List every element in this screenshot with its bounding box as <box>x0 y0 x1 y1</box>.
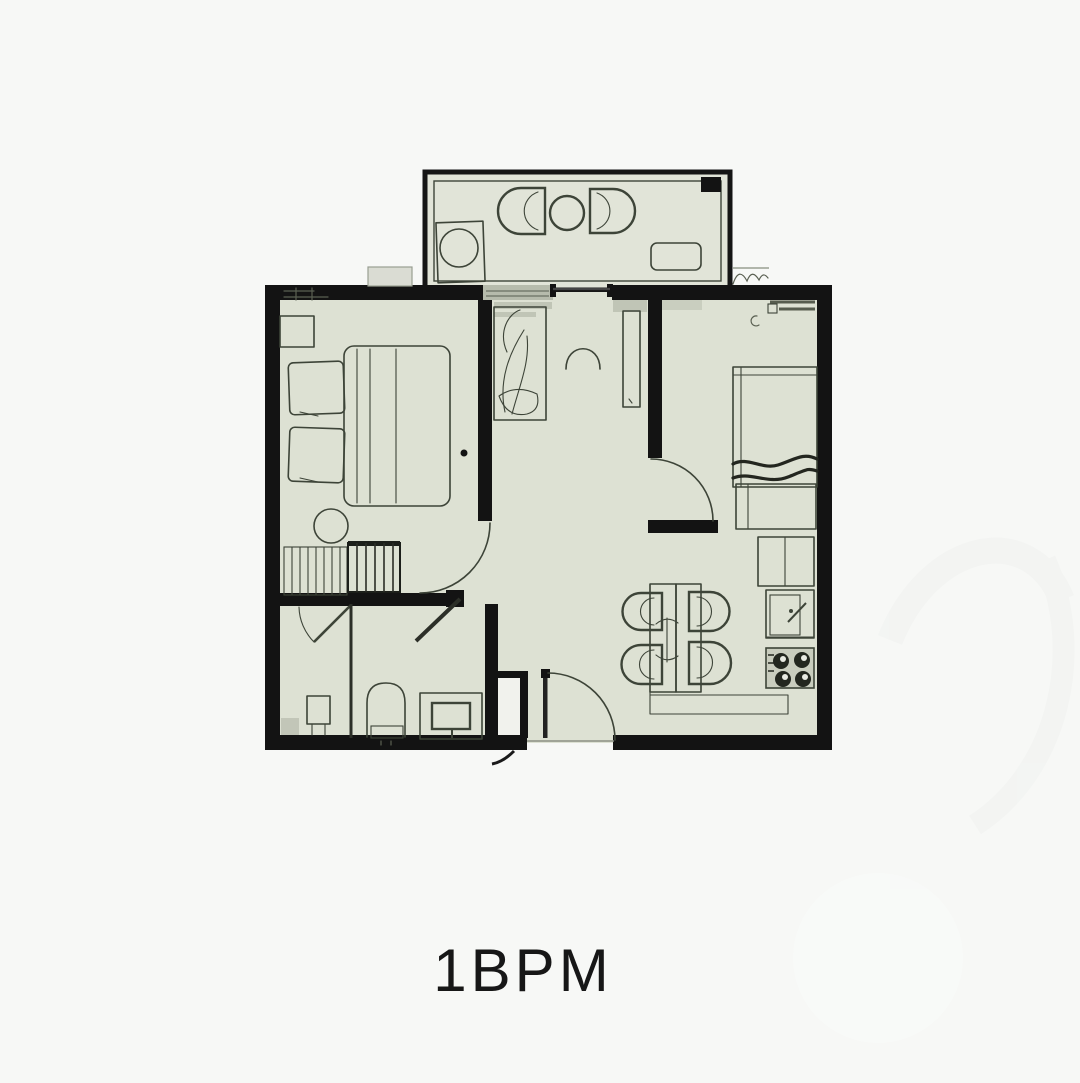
balcony <box>425 172 730 290</box>
window-marker-left <box>368 267 412 286</box>
balcony-wall <box>425 172 730 290</box>
wall-bottom-right <box>613 735 832 750</box>
plan-title: 1BPM <box>0 936 1046 1005</box>
entry-closet-lintel <box>492 671 528 678</box>
wall-left <box>265 285 280 750</box>
wall-top-left <box>265 285 483 300</box>
wall-top-right <box>612 285 832 300</box>
floorplan-page: 1BPM <box>0 0 1080 1083</box>
stove <box>766 648 814 688</box>
window-scribble-right <box>733 268 769 284</box>
balcony-corner-post <box>701 177 721 192</box>
entry-door-leaf <box>543 672 548 738</box>
wc-floor-mat <box>281 718 299 735</box>
floorplan-drawing <box>0 0 1080 1083</box>
wall-hall-left <box>478 300 492 521</box>
wall-stub-bedroom-right <box>648 520 718 533</box>
exterior-door-mark <box>492 751 514 764</box>
hinge-dot <box>461 450 468 457</box>
wall-hall-right <box>648 300 662 458</box>
hall-shelf-top <box>494 302 552 309</box>
window-top-center <box>483 285 553 300</box>
wall-right <box>817 285 832 750</box>
entry-closet-side <box>520 678 528 738</box>
